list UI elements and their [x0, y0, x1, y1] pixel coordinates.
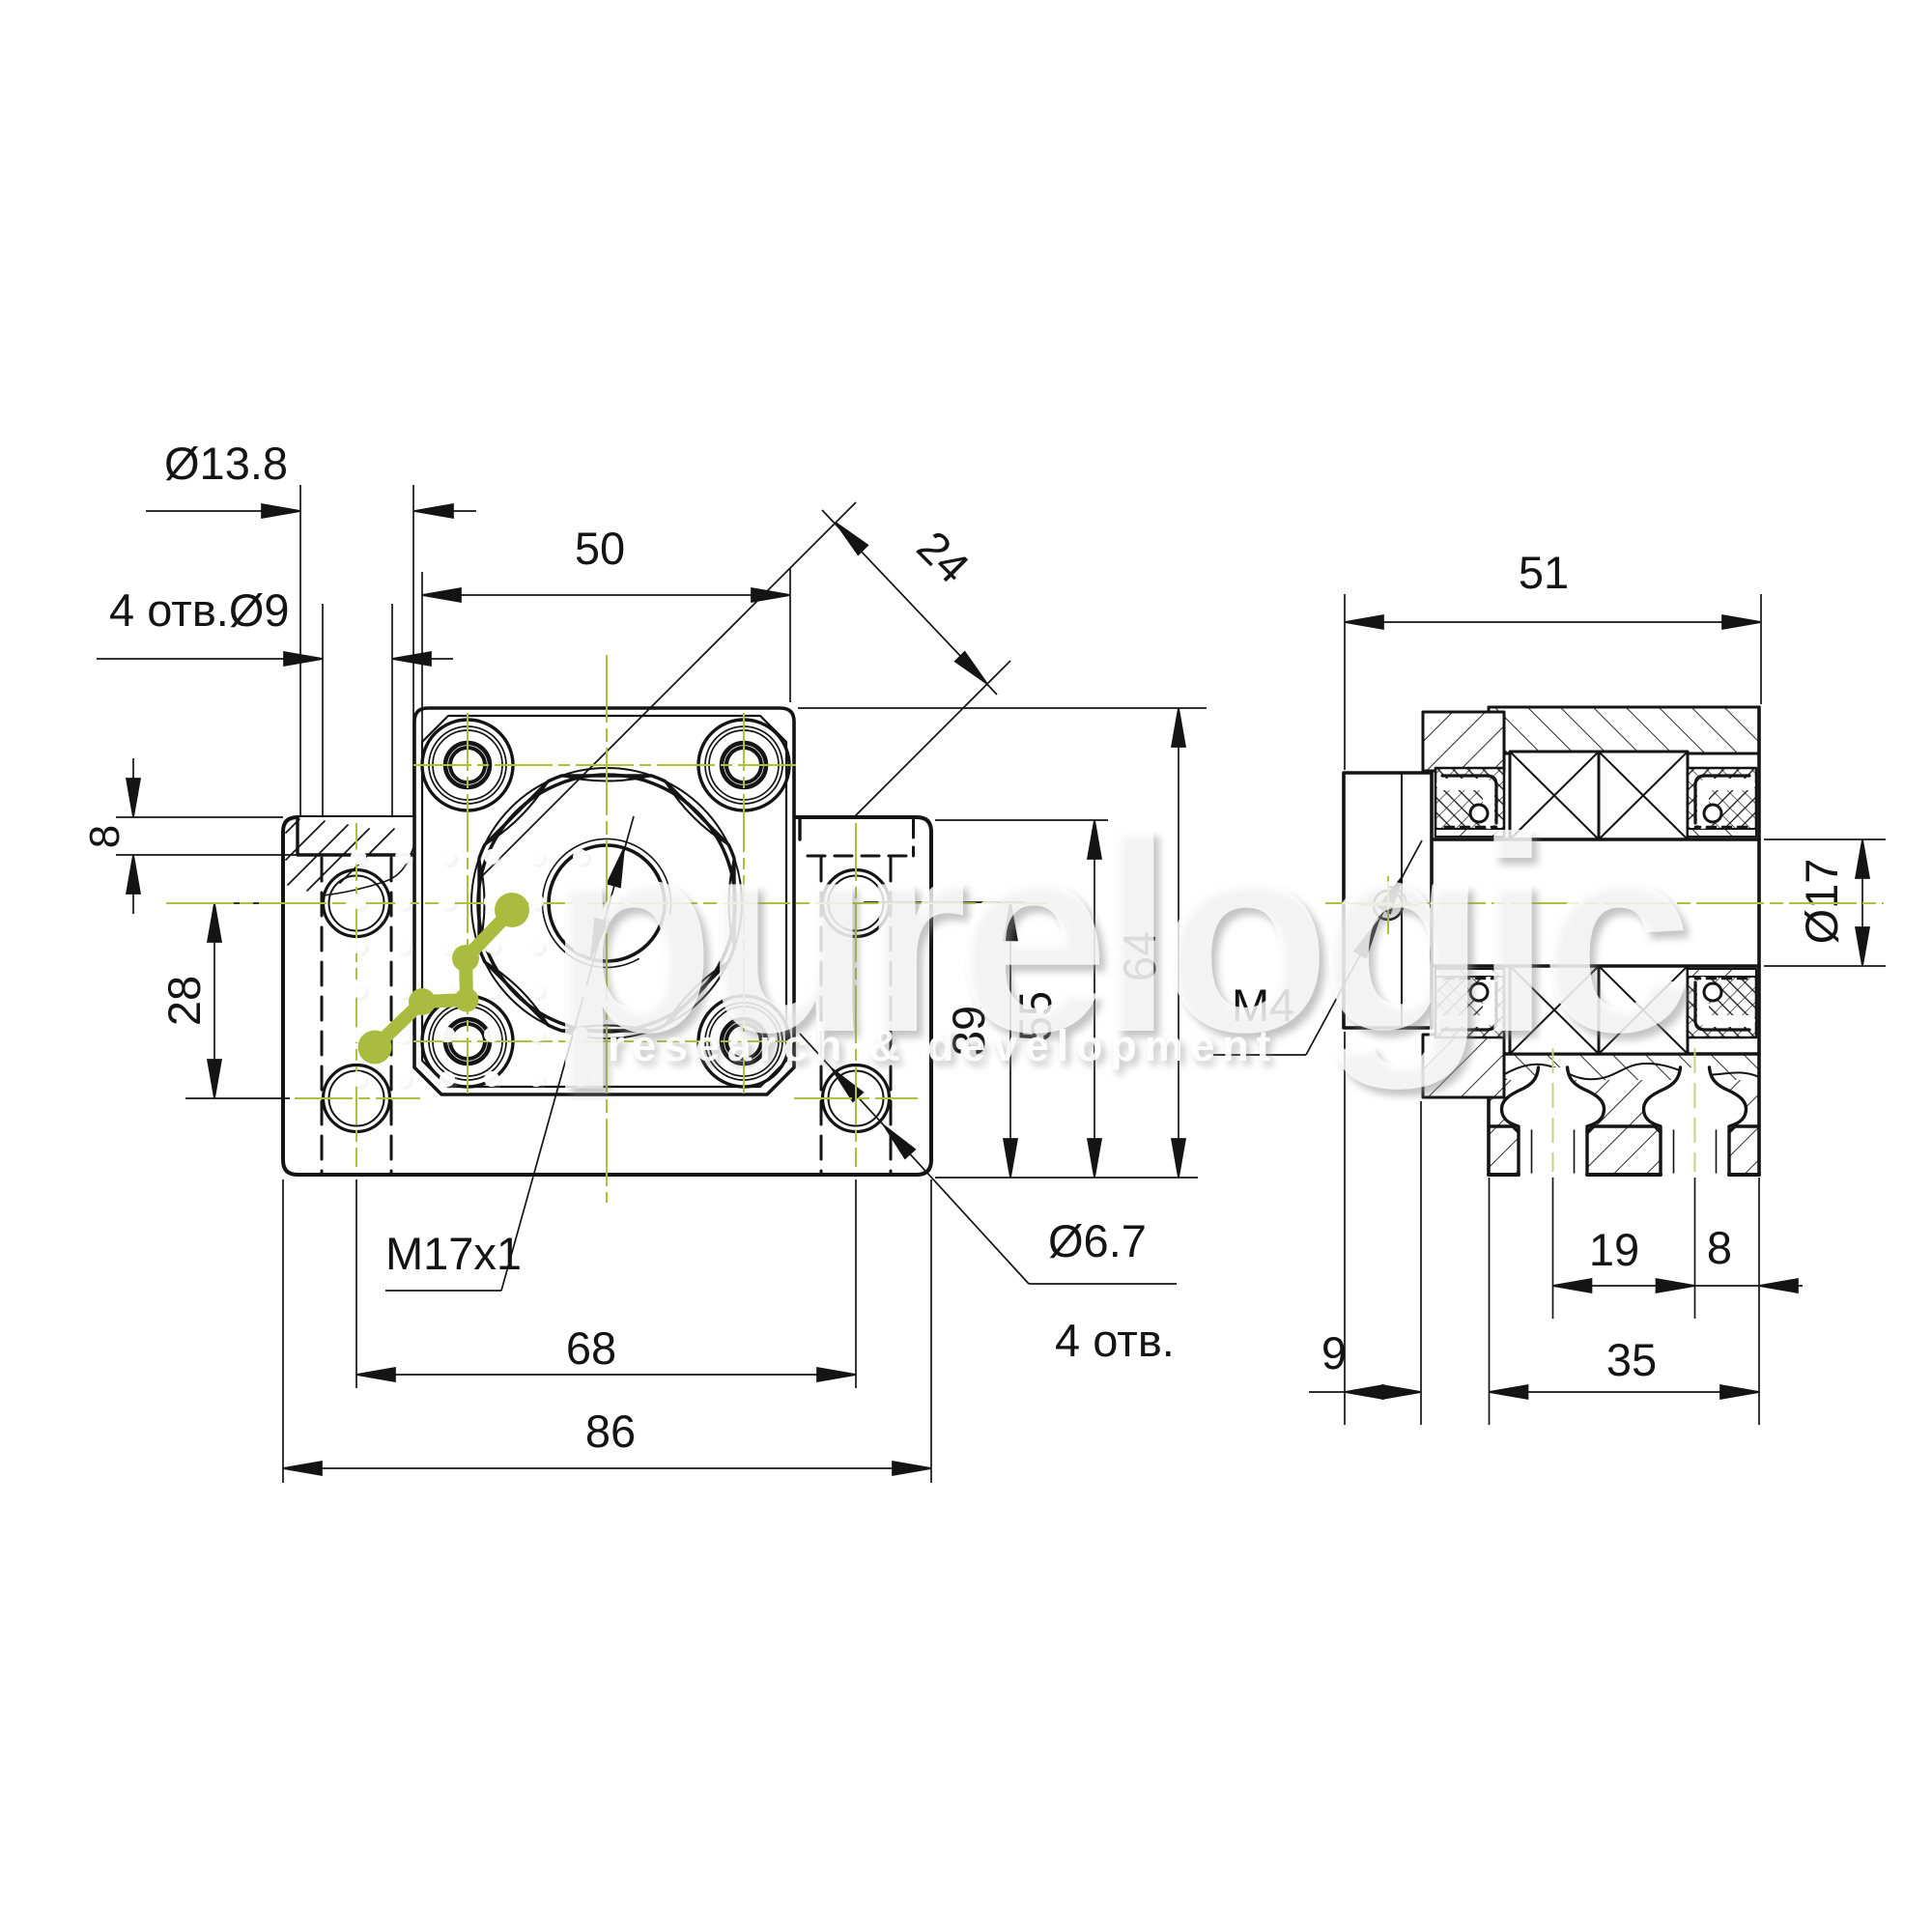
svg-text:19: 19	[1589, 1224, 1639, 1275]
svg-text:Ø17: Ø17	[1796, 859, 1847, 945]
svg-text:Ø6.7: Ø6.7	[1048, 1215, 1147, 1266]
svg-text:35: 35	[1606, 1334, 1657, 1385]
svg-text:51: 51	[1519, 547, 1569, 598]
svg-text:Ø13.8: Ø13.8	[164, 438, 288, 489]
svg-text:86: 86	[585, 1406, 636, 1457]
svg-text:research & development: research & development	[608, 1021, 1278, 1070]
svg-text:4 отв.: 4 отв.	[1055, 1315, 1175, 1366]
svg-text:8: 8	[81, 825, 128, 848]
svg-text:9: 9	[1321, 1327, 1347, 1378]
svg-text:M17x1: M17x1	[385, 1228, 522, 1279]
svg-text:50: 50	[575, 523, 625, 574]
svg-text:28: 28	[158, 976, 210, 1026]
svg-text:8: 8	[1707, 1222, 1732, 1273]
svg-text:4 отв.Ø9: 4 отв.Ø9	[109, 584, 290, 636]
svg-text:68: 68	[566, 1322, 616, 1374]
